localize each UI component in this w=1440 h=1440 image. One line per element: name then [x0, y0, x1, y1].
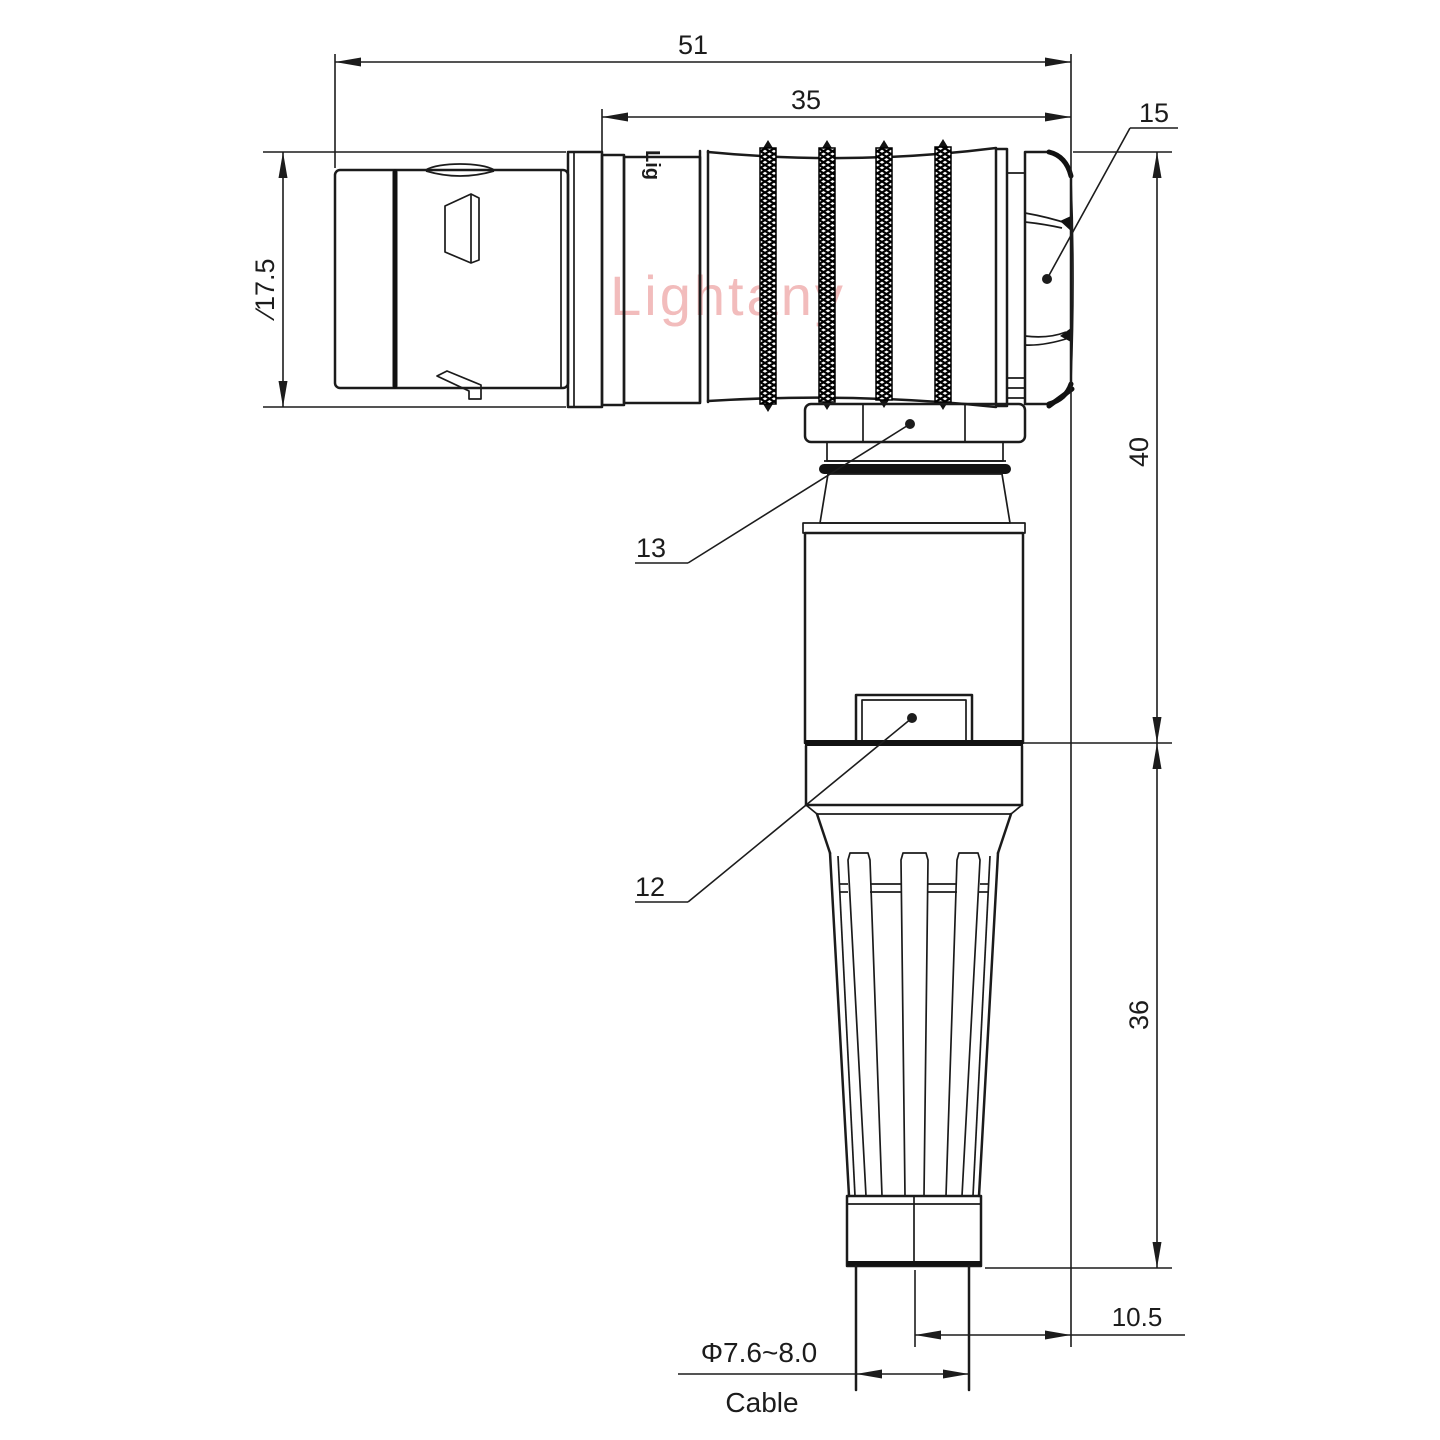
dimension-coupling-diameter: ∕17.5 — [250, 152, 288, 407]
boot-ferrule — [847, 1196, 981, 1266]
dimension-rear-length: 35 — [602, 85, 1071, 122]
callout-12-text: 12 — [635, 872, 665, 902]
callout-15-text: 15 — [1139, 98, 1169, 128]
strain-relief-boot — [817, 814, 1011, 1266]
drawing-canvas: Lightany Lig — [0, 0, 1440, 1440]
dim-36-text: 36 — [1124, 1000, 1154, 1030]
main-body — [803, 523, 1025, 814]
dimension-cable-offset: 10.5 — [915, 1302, 1185, 1340]
neck-groove — [1007, 173, 1025, 398]
key-window — [445, 194, 479, 263]
callout-13-text: 13 — [636, 533, 666, 563]
dim-51-text: 51 — [678, 30, 708, 60]
dimension-elbow-height: 40 — [1124, 152, 1162, 743]
watermark-text: Lightany — [610, 264, 846, 327]
dimension-boot-height: 36 — [1124, 743, 1162, 1268]
boot-webs — [839, 884, 989, 892]
extension-lines — [263, 54, 1172, 1347]
callout-coupling-nut: 13 — [635, 419, 915, 563]
seal-section — [819, 442, 1011, 523]
barrel-marking-text: Lig — [641, 150, 663, 180]
cable-label-text: Cable — [725, 1387, 798, 1418]
bottom-tab — [437, 371, 481, 399]
dimension-cable-diameter: Φ7.6~8.0 Cable — [678, 1337, 969, 1418]
coupling-nut — [805, 404, 1025, 442]
dim-17-5-text: ∕17.5 — [250, 258, 280, 321]
dimension-overall-length: 51 — [335, 30, 1071, 67]
boot-rib — [901, 853, 928, 1196]
connector-technical-drawing: Lightany Lig — [0, 0, 1440, 1440]
dim-35-text: 35 — [791, 85, 821, 115]
dim-10-5-text: 10.5 — [1112, 1302, 1163, 1332]
front-release-sleeve — [335, 164, 568, 399]
dim-40-text: 40 — [1124, 437, 1154, 467]
dim-cable-diameter-text: Φ7.6~8.0 — [701, 1337, 818, 1368]
